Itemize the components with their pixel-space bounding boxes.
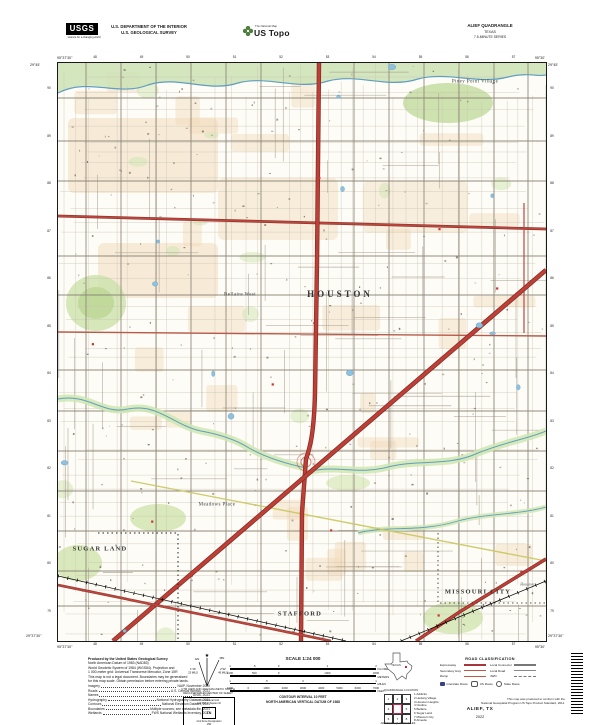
declination-diagram: ★ GN MN 1°16' 23 MILS 2°32' 45 MILS: [185, 650, 229, 688]
agency-line2: U.S. GEOLOGICAL SURVEY: [104, 30, 194, 36]
route-shield-item: State Route: [496, 681, 520, 688]
grid-tick-right: 87: [550, 229, 554, 233]
quad-series: 7.5-MINUTE SERIES: [420, 35, 560, 39]
ustopo-flower-icon: [243, 26, 253, 36]
adjoining-grid-cell: 2: [393, 694, 402, 704]
corner-coordinate-top-left-lat: 29°45': [30, 63, 40, 67]
adjoining-grid-cell: 5: [402, 704, 411, 714]
state-shield-icon: [496, 681, 503, 688]
grid-tick-right: 83: [550, 419, 554, 423]
map-frame: [57, 62, 547, 642]
scale-bar-row: 100001000200030004000500060007000FEET: [230, 686, 376, 693]
dotted-leader: [106, 709, 149, 710]
scale-title: SCALE 1:24 000: [230, 656, 376, 661]
route-shield-label: State Route: [504, 682, 520, 686]
quadrangle-title-block: ALIEF QUADRANGLE TEXAS 7.5-MINUTE SERIES: [420, 23, 560, 39]
grid-tick-right: 88: [550, 181, 554, 185]
road-class-title: ROAD CLASSIFICATION: [440, 657, 540, 661]
grid-tick-top: 56: [465, 55, 469, 59]
true-north-star-icon: ★: [205, 653, 210, 659]
grid-tick-top: 55: [419, 55, 423, 59]
grid-tick-right: 84: [550, 371, 554, 375]
adjoining-grid-cell: 3: [402, 694, 411, 704]
texas-state-outline: TEXAS: [384, 652, 414, 682]
road-class-rows: ExpresswayLocal ConnectorSecondary HwyLo…: [440, 663, 540, 678]
grid-tick-left: 90: [47, 86, 51, 90]
adjoining-grid-cell: 4: [384, 704, 393, 714]
quad-location-marker: [405, 666, 407, 668]
grid-tick-left: 81: [47, 514, 51, 518]
road-class-row: ExpresswayLocal Connector: [440, 663, 540, 667]
scale-bar-line: [230, 675, 376, 677]
sheet-name: ALIEF, TX: [430, 707, 530, 712]
us-shield-icon: [471, 681, 478, 687]
dotted-leader: [103, 714, 151, 715]
corner-coordinate-top-right-lat: 29°45': [548, 63, 558, 67]
route-shield-item: Interstate Route: [440, 682, 468, 687]
sheet-year: 2022: [430, 715, 530, 719]
dotted-leader: [99, 691, 170, 692]
road-class-label: Secondary Hwy: [440, 669, 464, 673]
ustopo-brand-text: US Topo: [254, 28, 313, 38]
grid-tick-left: 86: [47, 276, 51, 280]
barcode: [571, 653, 583, 715]
grid-tick-left: 83: [47, 419, 51, 423]
usgs-logo: USGS: [66, 23, 98, 35]
grid-tick-top: 50: [186, 55, 190, 59]
grid-tick-right: 89: [550, 134, 554, 138]
corner-coordinate-top-right-lon: 95°30': [535, 56, 545, 60]
grid-tick-right: 82: [550, 466, 554, 470]
grid-tick-left: 89: [47, 134, 51, 138]
grid-tick-right: 80: [550, 561, 554, 565]
agency-lines: U.S. DEPARTMENT OF THE INTERIOR U.S. GEO…: [104, 24, 194, 37]
interstate-shield-icon: [440, 682, 445, 687]
road-class-line-sample: [464, 670, 486, 671]
road-class-label: Ramp: [440, 674, 464, 678]
usgs-topo-sheet: USGS science for a changing world U.S. D…: [0, 0, 600, 725]
corner-coordinate-bottom-left-lat: 29°37'30": [26, 634, 41, 638]
road-classification-legend: ROAD CLASSIFICATION ExpresswayLocal Conn…: [440, 657, 540, 687]
grid-tick-left: 79: [47, 609, 51, 613]
adjoining-quads-grid: 12345678: [384, 694, 411, 721]
usgs-tagline: science for a changing world: [64, 36, 104, 39]
grid-tick-right: 81: [550, 514, 554, 518]
dotted-leader: [101, 687, 177, 688]
corner-coordinate-bottom-right-lat: 29°37'30": [548, 634, 563, 638]
gn-degrees: 1°16': [190, 667, 196, 671]
ustopo-logo: The National Map US Topo: [243, 24, 313, 38]
quad-state: TEXAS: [420, 30, 560, 34]
route-shield-label: US Route: [480, 682, 493, 686]
grid-tick-top: 52: [279, 55, 283, 59]
grid-tick-left: 82: [47, 466, 51, 470]
adjoining-grid-cell: 1: [384, 694, 393, 704]
road-class-line-sample: [514, 664, 536, 665]
corner-coordinate-top-left-lon: 95°37'30": [57, 56, 72, 60]
grid-tick-top: 51: [233, 55, 237, 59]
adjoining-grid-cell: [393, 704, 402, 714]
mn-degrees: 2°32': [220, 667, 226, 671]
scale-bars: 1.5012KILOMETERS1000500010002000METERS1.…: [230, 664, 376, 694]
grid-tick-top: 53: [326, 55, 330, 59]
route-shield-item: US Route: [471, 681, 493, 687]
scale-bar-row: 1.5012KILOMETERS: [230, 664, 376, 671]
gn-mils: 23 MILS: [188, 671, 198, 675]
contour-line2: NORTH AMERICAN VERTICAL DATUM OF 1988: [226, 700, 380, 705]
grid-tick-top: 49: [140, 55, 144, 59]
grid-tick-right: 79: [550, 609, 554, 613]
road-class-label: Local Road: [490, 669, 514, 673]
texas-label: TEXAS: [391, 663, 401, 667]
dotted-leader: [108, 700, 156, 701]
corner-coordinate-bottom-right-lon: 95°30': [535, 645, 545, 649]
grid-tick-right: 86: [550, 276, 554, 280]
route-shield-row: Interstate RouteUS RouteState Route: [440, 681, 540, 688]
road-class-line-sample: [514, 676, 536, 677]
map-canvas: [58, 63, 546, 641]
magnetic-north-label: MN: [220, 656, 225, 660]
grid-tick-right: 90: [550, 86, 554, 90]
scale-bar-row: 1.501MILES: [230, 679, 376, 686]
grid-tick-left: 87: [47, 229, 51, 233]
grid-tick-top: 57: [512, 55, 516, 59]
road-class-line-sample: [514, 670, 536, 671]
road-class-label: Local Connector: [490, 663, 514, 667]
contour-interval-note: CONTOUR INTERVAL 10 FEET NORTH AMERICAN …: [226, 695, 380, 705]
scale-bar-line: [230, 668, 376, 670]
grid-tick-left: 84: [47, 371, 51, 375]
road-class-row: Secondary HwyLocal Road: [440, 669, 540, 673]
road-class-line-sample: [464, 676, 486, 677]
scale-bar-row: 1000500010002000METERS: [230, 671, 376, 678]
scale-bar-line: [230, 683, 376, 685]
grid-tick-right: 85: [550, 324, 554, 328]
grid-tick-top: 54: [372, 55, 376, 59]
road-class-label: 4WD: [490, 674, 514, 678]
grid-north-label: GN: [195, 657, 200, 661]
quad-title: ALIEF QUADRANGLE: [420, 23, 560, 28]
source-label: Wetlands: [88, 711, 102, 716]
usng-square-id: TN: [202, 707, 216, 719]
grid-tick-left: 80: [47, 561, 51, 565]
road-class-line-sample: [464, 664, 486, 666]
road-class-label: Expressway: [440, 663, 464, 667]
grid-tick-left: 88: [47, 181, 51, 185]
road-class-row: Ramp4WD: [440, 674, 540, 678]
grid-tick-top: 48: [93, 55, 97, 59]
route-shield-label: Interstate Route: [447, 682, 468, 686]
corner-coordinate-bottom-left-lon: 95°37'30": [57, 645, 72, 649]
scale-bar-line: [230, 690, 376, 692]
grid-tick-left: 85: [47, 324, 51, 328]
